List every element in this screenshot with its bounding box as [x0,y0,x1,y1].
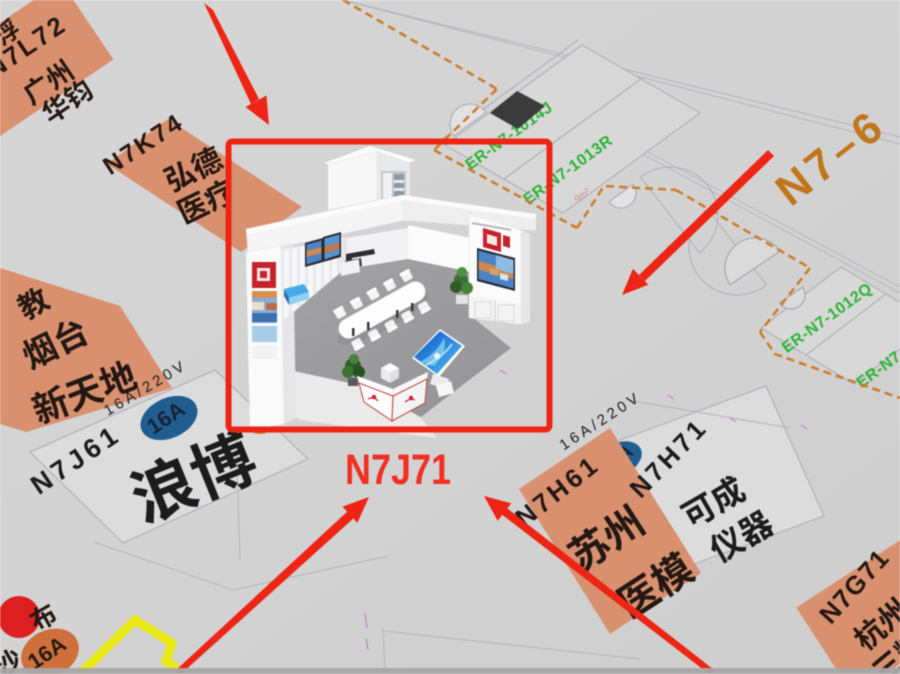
svg-text:N7J71: N7J71 [345,446,451,494]
